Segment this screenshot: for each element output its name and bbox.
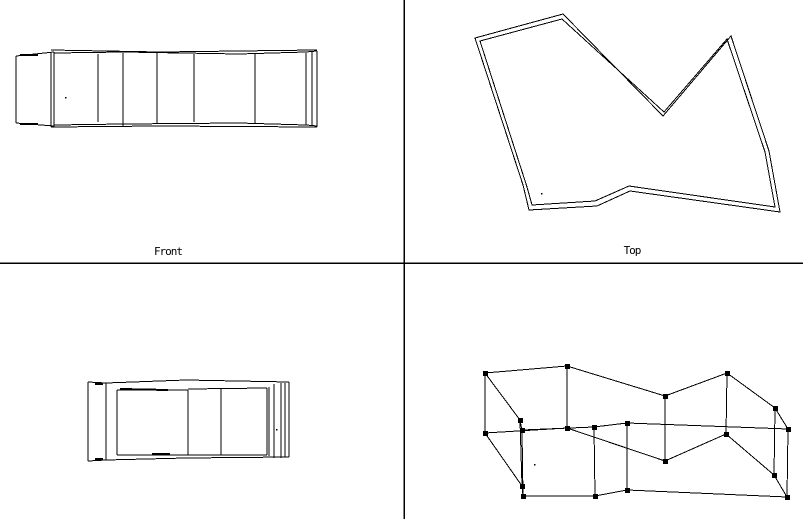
wireframe-line bbox=[54, 52, 124, 53]
vertex-marker[interactable] bbox=[483, 371, 488, 376]
front-view-drawing bbox=[16, 50, 317, 127]
wireframe-heavy-line bbox=[120, 389, 168, 390]
wireframe-line bbox=[51, 50, 160, 52]
perspective-top-rail bbox=[485, 366, 788, 430]
vertex-marker[interactable] bbox=[521, 494, 526, 499]
top-view-label: Top bbox=[624, 245, 641, 256]
perspective-post bbox=[726, 373, 727, 434]
vertex-marker[interactable] bbox=[724, 432, 729, 437]
wireframe-line bbox=[160, 50, 317, 52]
vertex-marker[interactable] bbox=[565, 426, 570, 431]
vertex-marker[interactable] bbox=[592, 425, 597, 430]
wireframe-line bbox=[124, 52, 239, 54]
wireframe-line bbox=[106, 380, 186, 383]
vertex-marker[interactable] bbox=[520, 428, 525, 433]
wireframe-line bbox=[88, 382, 106, 383]
vertex-marker[interactable] bbox=[520, 484, 525, 489]
perspective-post bbox=[774, 408, 775, 475]
wireframe-line bbox=[239, 123, 306, 125]
wireframe-line bbox=[54, 124, 124, 125]
viewport-dividers bbox=[0, 0, 803, 519]
wireframe-line bbox=[106, 458, 186, 460]
stray-dot bbox=[534, 464, 536, 466]
stray-dot bbox=[276, 429, 278, 431]
vertex-marker[interactable] bbox=[663, 459, 668, 464]
stray-dot bbox=[541, 193, 543, 195]
vertex-marker[interactable] bbox=[785, 495, 790, 500]
vertex-marker[interactable] bbox=[773, 406, 778, 411]
vertex-marker[interactable] bbox=[786, 427, 791, 432]
vertex-marker[interactable] bbox=[593, 494, 598, 499]
wireframe-line bbox=[306, 51, 317, 52]
vertex-marker[interactable] bbox=[772, 473, 777, 478]
vertex-marker[interactable] bbox=[725, 371, 730, 376]
vertex-marker[interactable] bbox=[565, 364, 570, 369]
stray-dot bbox=[65, 97, 67, 99]
drawing-canvas[interactable] bbox=[0, 0, 803, 519]
wireframe-line bbox=[306, 125, 317, 126]
vertex-marker[interactable] bbox=[663, 394, 668, 399]
wireframe-line bbox=[186, 380, 289, 382]
vertex-marker[interactable] bbox=[518, 418, 523, 423]
stray-dots bbox=[65, 97, 543, 466]
wall-outline-outer bbox=[475, 14, 780, 212]
wireframe-line bbox=[188, 388, 267, 389]
wall-outline-inner bbox=[480, 19, 775, 207]
front-view-label: Front bbox=[154, 246, 182, 257]
side-view-drawing bbox=[88, 380, 289, 461]
cad-workspace: Front Top bbox=[0, 0, 803, 519]
vertex-marker[interactable] bbox=[483, 431, 488, 436]
wireframe-line bbox=[160, 126, 317, 127]
perspective-post bbox=[787, 429, 788, 497]
perspective-bottom-rail bbox=[485, 428, 787, 497]
vertex-marker[interactable] bbox=[625, 421, 630, 426]
top-view-drawing bbox=[475, 14, 780, 212]
perspective-view-drawing bbox=[483, 364, 791, 500]
wireframe-line bbox=[51, 126, 160, 127]
wireframe-line bbox=[124, 123, 239, 124]
vertex-marker[interactable] bbox=[625, 488, 630, 493]
wireframe-line bbox=[88, 460, 106, 461]
wireframe-line bbox=[239, 52, 306, 54]
